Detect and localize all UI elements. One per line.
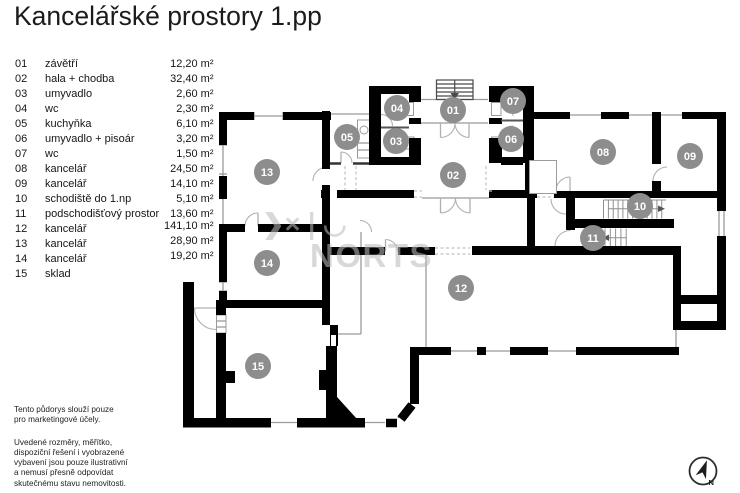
svg-text:❯×❘◡: ❯×❘◡ — [262, 209, 347, 240]
svg-text:07: 07 — [507, 96, 519, 108]
svg-text:01: 01 — [447, 105, 459, 117]
svg-text:05: 05 — [341, 132, 353, 144]
svg-text:N: N — [709, 478, 714, 487]
svg-text:09: 09 — [684, 151, 696, 163]
svg-text:NORTS: NORTS — [310, 237, 433, 274]
svg-text:10: 10 — [634, 201, 646, 213]
svg-text:11: 11 — [587, 233, 599, 245]
svg-text:14: 14 — [261, 258, 274, 270]
svg-text:02: 02 — [447, 170, 459, 182]
svg-text:13: 13 — [261, 167, 273, 179]
svg-text:08: 08 — [597, 147, 609, 159]
svg-text:12: 12 — [455, 283, 467, 295]
svg-text:03: 03 — [390, 136, 402, 148]
svg-text:06: 06 — [505, 134, 517, 146]
svg-text:04: 04 — [391, 103, 404, 115]
svg-text:15: 15 — [252, 361, 264, 373]
